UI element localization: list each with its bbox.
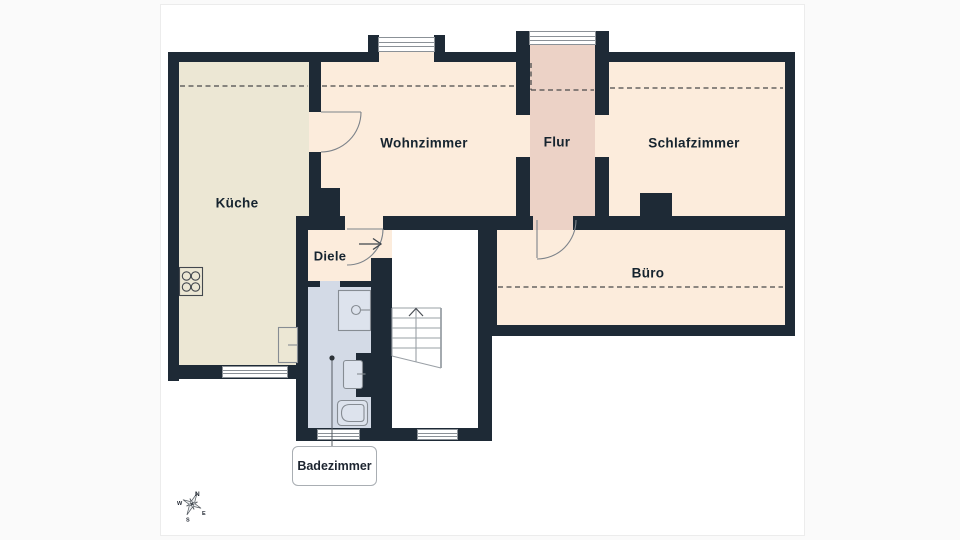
- roof-slope-dashed-lines: [180, 63, 783, 287]
- compass-rose-icon: N W E S: [177, 489, 206, 524]
- room-label-flur: Flur: [544, 135, 571, 150]
- sink-icon: [339, 291, 371, 331]
- stove-icon: [180, 268, 203, 296]
- compass-north-label: N: [195, 491, 200, 498]
- stairs-symbol: [392, 308, 441, 368]
- compass-east-label: E: [202, 511, 206, 517]
- room-label-diele: Diele: [314, 249, 347, 264]
- door-swing-buero: [537, 220, 576, 259]
- room-label-buero: Büro: [632, 266, 665, 281]
- door-swing-kueche: [321, 112, 361, 152]
- room-label-wohnzimmer: Wohnzimmer: [380, 136, 468, 151]
- room-label-kueche: Küche: [216, 196, 259, 211]
- callout-label: Badezimmer: [297, 459, 371, 473]
- bathtub-icon: [338, 401, 368, 426]
- kitchen-counter-icon: [279, 328, 298, 363]
- floorplan-screenshot: N W E S Küche Wohnzimmer Flur Schlafzimm…: [0, 0, 960, 540]
- plan-linework: N W E S: [0, 0, 960, 540]
- badezimmer-callout: Badezimmer: [292, 446, 377, 486]
- compass-west-label: W: [177, 501, 183, 507]
- callout-leader-line: [329, 355, 334, 446]
- compass-south-label: S: [186, 518, 190, 524]
- room-label-schlafzimmer: Schlafzimmer: [648, 136, 739, 151]
- toilet-icon: [344, 361, 366, 389]
